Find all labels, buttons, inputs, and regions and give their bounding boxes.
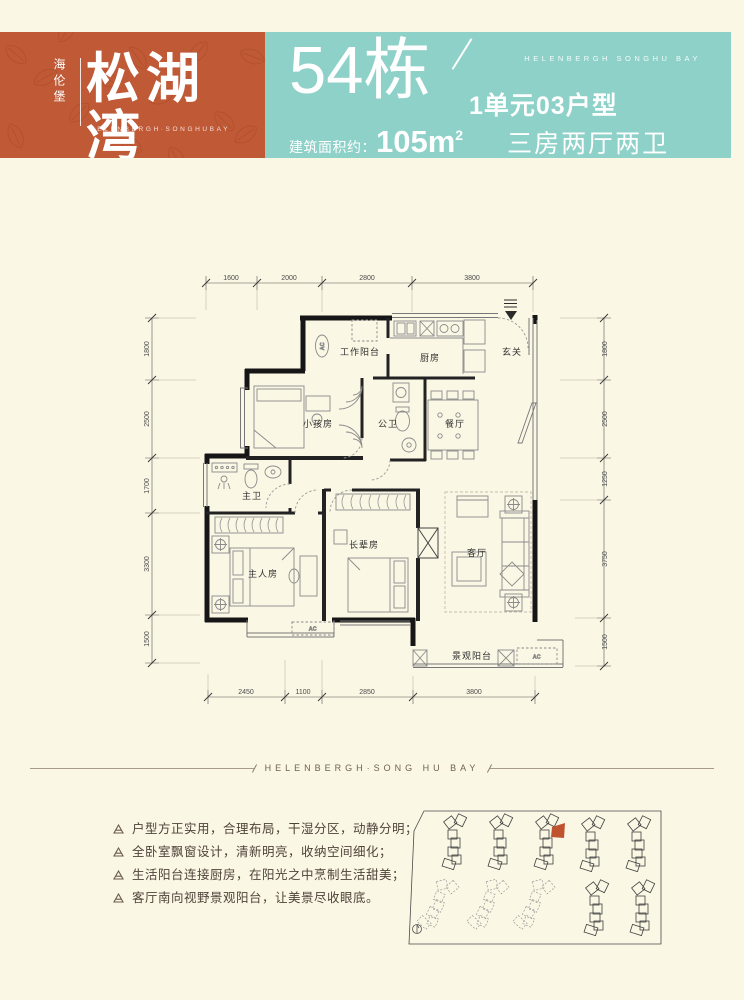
dim-right-5: 1500 [602,634,609,650]
room-labels: 工作阳台 厨房 玄关 小孩房 公卫 餐厅 主卫 主人房 长辈房 客厅 景观阳台 [242,346,522,661]
dim-bottom-1: 2450 [238,689,254,696]
brand-name-en: HELENBERGH·SONGHUBAY [90,126,230,133]
balcony-fixtures: AC AC [292,622,557,666]
triangle-bullet-icon [113,847,124,857]
layout-type: 三房两厅两卫 [507,124,669,160]
site-plan [400,800,680,960]
dim-right-3: 1250 [602,471,609,487]
ac-oval-label: AC [320,342,326,350]
room-label-dining: 餐厅 [445,418,465,429]
room-label-master-room: 主人房 [248,568,278,579]
slash-mark [452,38,473,70]
room-label-kids-room: 小孩房 [303,418,333,429]
section-divider: HELENBERGH·SONG HU BAY [30,763,714,773]
feature-text: 客厅南向视野景观阳台，让美景尽收眼底。 [132,891,379,905]
dim-top-2: 2000 [281,275,297,282]
title-block: HELENBERGH SONGHU BAY 54栋 1单元03户型 建筑面积约：… [265,32,731,158]
bay-ac-label: AC [309,627,317,633]
room-label-kitchen: 厨房 [420,352,440,363]
room-label-guest-bath: 公卫 [378,419,398,429]
duct-shaft [418,528,438,558]
area-row: 建筑面积约： 105m 2 三房两厅两卫 [289,124,669,160]
master-room-furniture [212,517,317,613]
area-superscript: 2 [455,127,463,143]
area-label: 建筑面积约： [289,137,376,157]
walls-interior [206,318,475,621]
triangle-bullet-icon [113,893,124,903]
room-label-work-balcony: 工作阳台 [340,346,380,357]
dim-top-3: 2800 [359,275,375,282]
highlighted-building-54 [551,823,565,838]
header-brand-en: HELENBERGH SONGHU BAY [524,54,701,63]
kitchen-fixtures [390,320,485,374]
divider-text: HELENBERGH·SONG HU BAY [255,763,490,773]
master-bath-fixtures [212,463,281,489]
feature-item: 全卧室飘窗设计，清新明亮，收纳空间细化； [113,845,418,859]
brand-name: 松湖湾 [86,50,265,158]
dim-right-4: 3750 [602,551,609,567]
feature-item: 客厅南向视野景观阳台，让美景尽收眼底。 [113,891,418,905]
triangle-bullet-icon [113,870,124,880]
dim-bottom-3: 2850 [359,689,375,696]
site-buildings-dashed [415,874,556,935]
doors [266,318,536,513]
brand-logo-block: 海伦堡 松湖湾 HELENBERGH·SONGHUBAY [0,32,265,158]
brand-vertical-name: 海伦堡 [52,58,66,106]
feature-text: 全卧室飘窗设计，清新明亮，收纳空间细化； [132,845,392,859]
dim-bottom-2: 1100 [295,689,310,696]
room-label-elder-room: 长辈房 [349,539,379,550]
guest-bath-fixtures [393,383,416,452]
compass-icon [413,925,422,934]
dim-left-4: 3300 [144,556,151,572]
dim-left-2: 2500 [144,411,151,427]
dim-left-1: 1800 [144,341,151,357]
unit-type: 1单元03户型 [469,86,618,122]
balcony-ac-label: AC [533,655,541,661]
floor-plan: 1600 2000 2800 3800 2450 1100 2850 3800 … [0,250,744,740]
dim-right-2: 2500 [602,411,609,427]
dim-left-3: 1700 [144,478,151,494]
room-label-living: 客厅 [467,547,487,558]
dim-top-4: 3800 [464,275,480,282]
dim-right-1: 1800 [602,341,609,357]
dim-bottom-4: 3800 [466,689,482,696]
site-buildings-solid [442,814,655,936]
dim-top-1: 1600 [223,275,239,282]
feature-item: 生活阳台连接厨房，在阳光之中烹制生活甜美； [113,868,418,882]
area-value: 105m [376,124,455,160]
elder-room-furniture [334,494,410,612]
brand-divider-line [80,58,81,126]
dim-left-5: 1500 [144,631,151,647]
entry-marker-icon [504,300,517,320]
living-room-furniture [445,492,531,612]
walls-exterior [205,315,535,646]
kids-room-furniture [254,386,362,448]
room-label-view-balcony: 景观阳台 [452,650,492,661]
feature-text: 生活阳台连接厨房，在阳光之中烹制生活甜美； [132,868,405,882]
feature-list: 户型方正实用，合理布局，干湿分区，动静分明； 全卧室飘窗设计，清新明亮，收纳空间… [113,822,418,914]
triangle-bullet-icon [113,824,124,834]
divider-line-right [490,768,714,769]
building-number: 54栋 [289,36,431,106]
dimension-labels: 1600 2000 2800 3800 2450 1100 2850 3800 … [144,275,609,696]
feature-item: 户型方正实用，合理布局，干湿分区，动静分明； [113,822,418,836]
divider-line-left [30,768,254,769]
feature-text: 户型方正实用，合理布局，干湿分区，动静分明； [132,822,418,836]
site-boundary [409,811,661,944]
room-label-foyer: 玄关 [502,346,522,357]
room-label-master-bath: 主卫 [242,490,262,501]
